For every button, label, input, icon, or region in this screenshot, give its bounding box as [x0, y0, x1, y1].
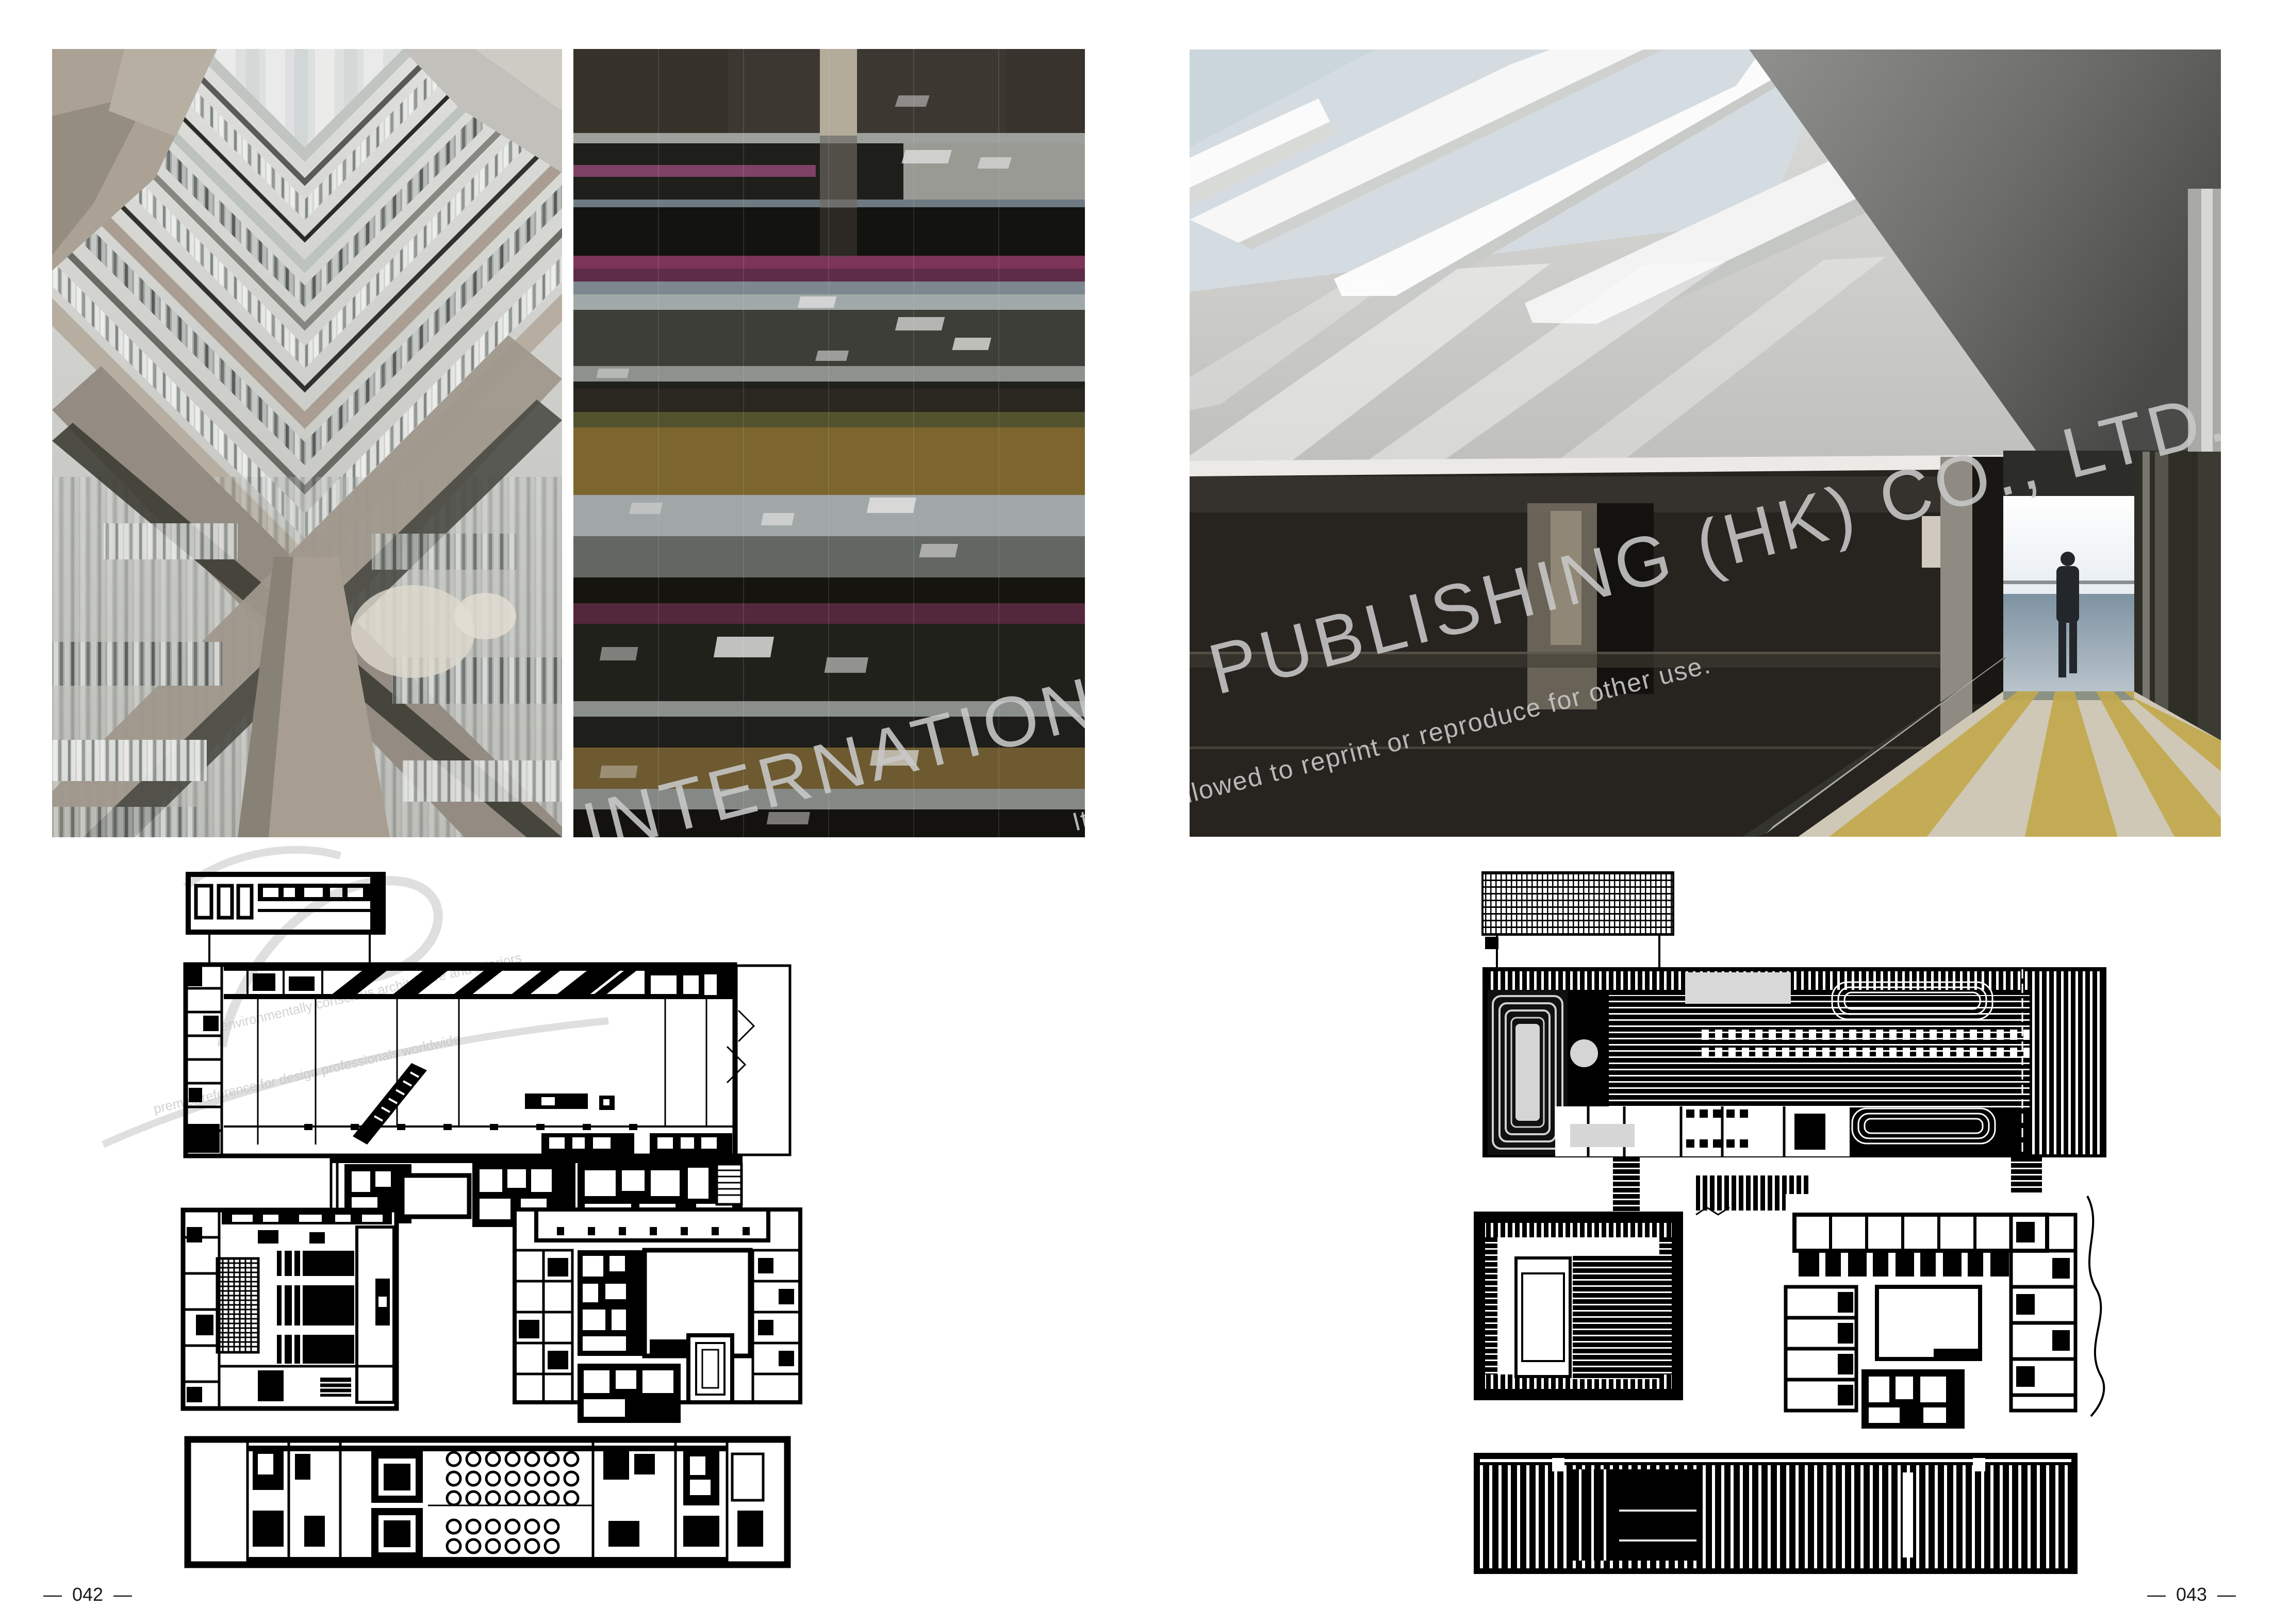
- svg-text:It is not allowed to reprint o: It is not allowed to reprint or reproduc…: [1069, 650, 1713, 836]
- svg-text:INTERNATIONAL PUBLISHING (HK): INTERNATIONAL PUBLISHING (HK) CO., LTD.: [575, 376, 2237, 868]
